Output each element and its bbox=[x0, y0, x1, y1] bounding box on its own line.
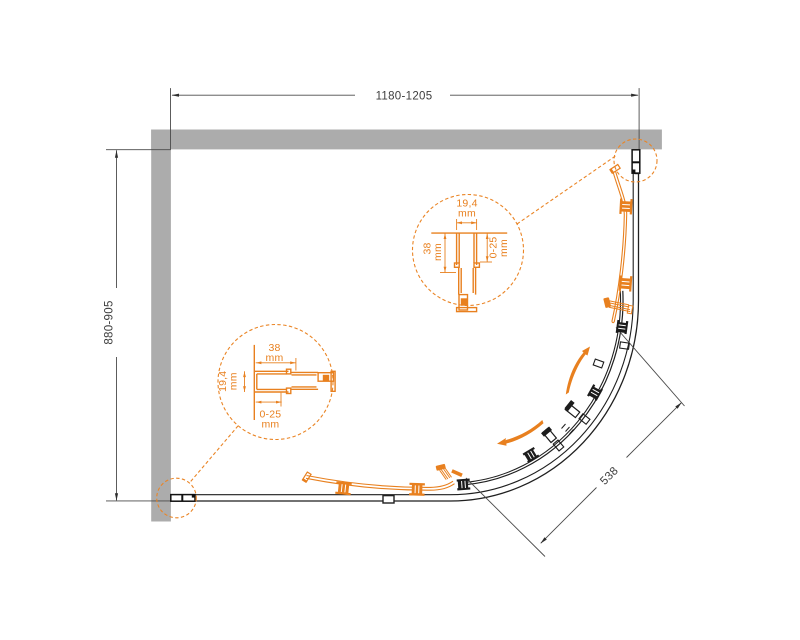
svg-text:mm: mm bbox=[458, 208, 476, 220]
svg-text:mm: mm bbox=[432, 243, 444, 261]
svg-text:mm: mm bbox=[261, 419, 279, 431]
svg-text:1180-1205: 1180-1205 bbox=[376, 91, 433, 103]
svg-text:880-905: 880-905 bbox=[104, 300, 116, 344]
svg-text:mm: mm bbox=[498, 239, 510, 257]
svg-text:mm: mm bbox=[228, 372, 240, 390]
svg-text:mm: mm bbox=[266, 352, 284, 364]
